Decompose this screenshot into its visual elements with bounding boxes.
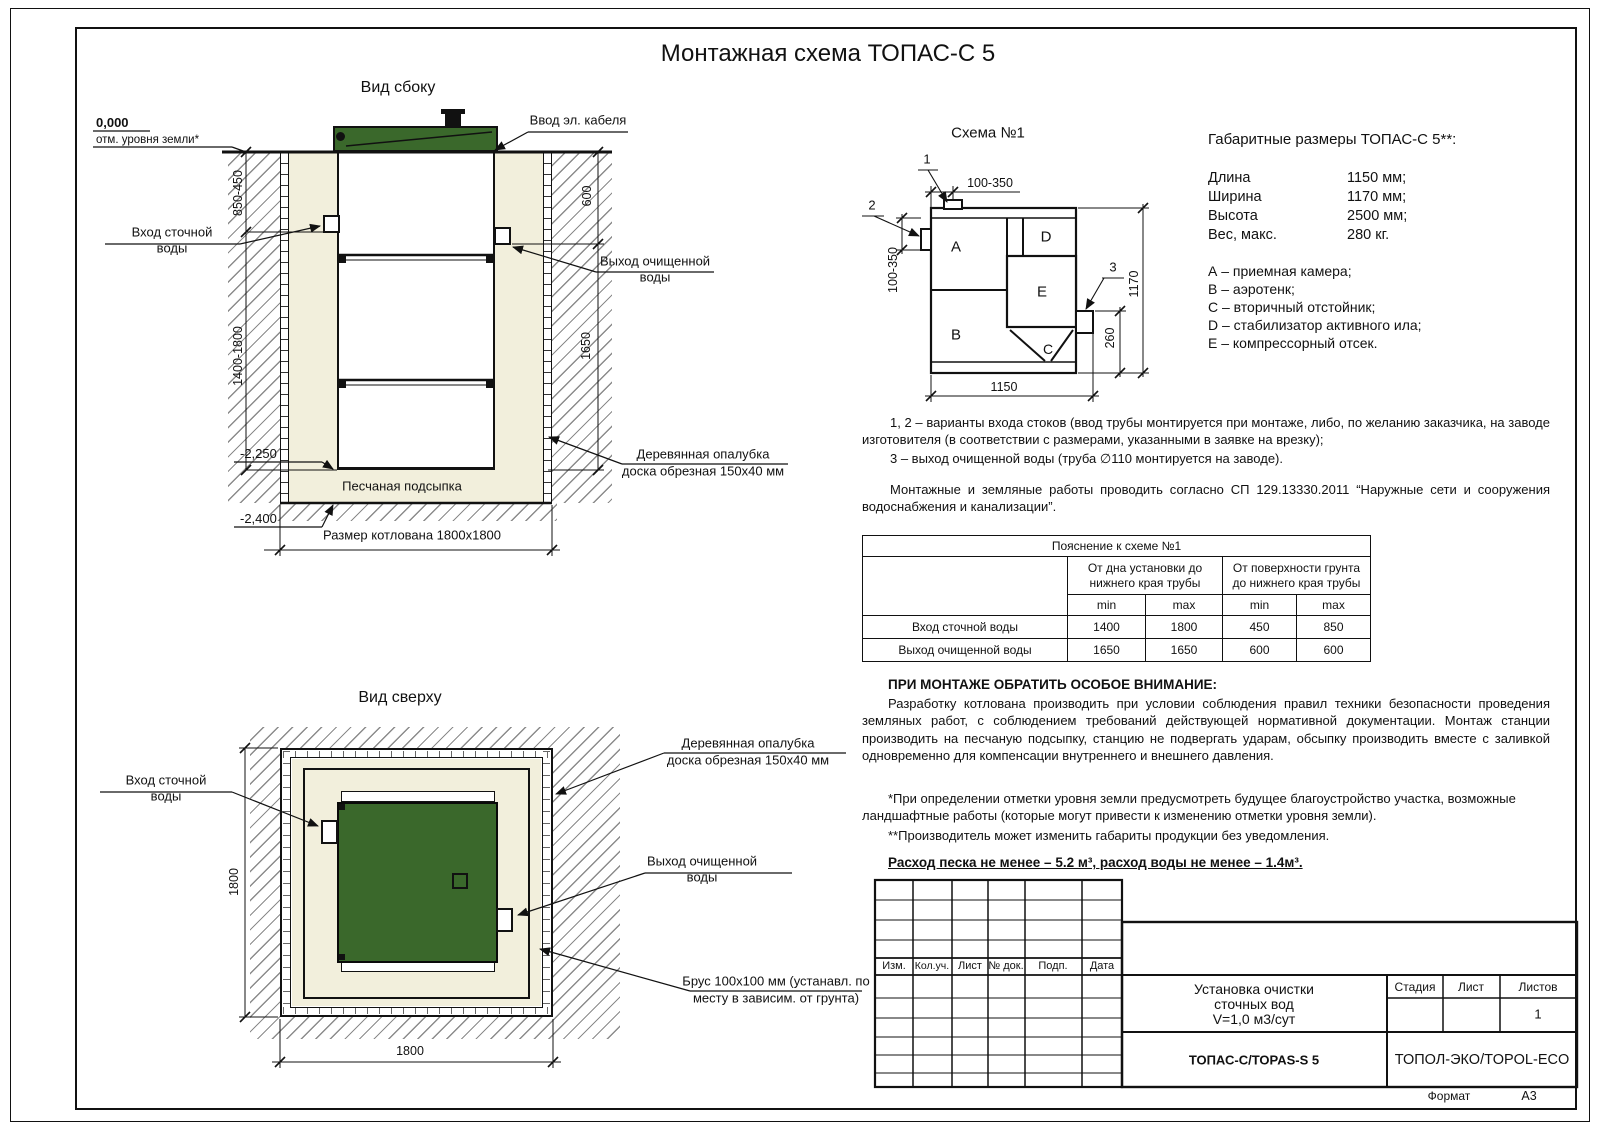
stamp-col-izm: Изм. [882,960,906,972]
sheets-value: 1 [1534,1007,1541,1022]
schema-caption: Схема №1 [951,124,1025,141]
stamp-col-koluch: Кол.уч. [915,960,949,972]
table-max-header: max [1146,595,1223,616]
schema-callout-3: 3 [1109,261,1116,276]
inlet-pipe-stub-side [323,215,340,233]
row-value: 600 [1297,639,1371,662]
pit-size-label: Размер котлована 1800х1800 [323,529,501,544]
row-value: 450 [1223,616,1297,639]
dim-inlet-range: 1400-1800 [231,326,245,386]
dim-1800-vertical: 1800 [227,868,241,896]
outlet-label-top: Выход очищенной [647,855,757,870]
row-label: Выход очищенной воды [863,639,1068,662]
outlet-pipe-stub-top [496,908,513,932]
schema-dim-left: 100-350 [886,247,900,293]
inlet-label-side: Вход сточной [132,226,213,241]
outlet-label-side: Выход очищенной [600,255,710,270]
doc-title-line3: V=1,0 м3/сут [1213,1011,1296,1027]
sand-label: Песчаная подсыпка [342,480,462,495]
row-value: 1650 [1146,639,1223,662]
row-value: 1400 [1068,616,1146,639]
attention-title: ПРИ МОНТАЖЕ ОБРАТИТЬ ОСОБОЕ ВНИМАНИЕ: [888,677,1217,693]
sheet-label: Лист [1458,980,1484,994]
legend-item: А – приемная камера; [1208,263,1352,279]
formwork-label-side: Деревянная опалубка [637,448,770,463]
explanation-table: Пояснение к схеме №1 От дна установки до… [862,535,1371,662]
mark-2250: -2,250 [240,447,277,462]
drawing-sheet: Монтажная схема ТОПАС-С 5 Вид сбоку 0,00… [0,0,1600,1131]
spec-key: Ширина [1208,189,1262,206]
stamp-col-data: Дата [1090,960,1114,972]
spec-value: 1170 мм; [1347,189,1406,206]
doc-title-line1: Установка очистки [1194,981,1314,997]
sheets-label: Листов [1519,980,1558,994]
top-view-caption: Вид сверху [358,689,441,707]
row-value: 850 [1297,616,1371,639]
compartment-d: D [1041,228,1052,245]
top-view-lines [100,743,862,1068]
schema-callout-1: 1 [923,153,930,168]
company-name: ТОПОЛ-ЭКО/TOPOL-ECO [1395,1052,1570,1068]
schema-dim-height: 1170 [1127,271,1141,298]
stamp-col-list: Лист [958,960,982,972]
table-min-header: min [1223,595,1297,616]
spec-value: 1150 мм; [1347,170,1406,187]
spec-key: Вес, макс. [1208,227,1277,244]
inlet-label-side: воды [157,242,188,257]
doc-title-line2: сточных вод [1214,996,1294,1012]
table-row: Выход очищенной воды 1650 1650 600 600 [863,639,1371,662]
mark-2400: -2,400 [240,512,277,527]
footnote-1: *При определении отметки уровня земли пр… [862,790,1554,825]
compartment-a: A [951,238,961,255]
dim-1800-horizontal: 1800 [396,1044,424,1058]
format-value: А3 [1521,1089,1536,1103]
schema-dim-top: 100-350 [967,176,1013,190]
zero-note: отм. уровня земли* [96,134,199,147]
dim-outlet-range: 1650 [579,332,593,360]
spec-key: Высота [1208,208,1258,225]
consumption-note: Расход песка не менее – 5.2 м³, расход в… [888,855,1303,871]
schema-lines [862,170,1149,402]
zero-mark: 0,000 [96,116,129,131]
table-group2-header: От поверхности грунта до нижнего края тр… [1223,557,1371,595]
schema-dim-outlet: 260 [1103,328,1117,349]
row-value: 600 [1223,639,1297,662]
footnote-2: **Производитель может изменить габариты … [862,827,1554,844]
dim-inlet-depth: 850-450 [231,170,245,216]
compartment-b: B [951,326,961,343]
table-title: Пояснение к схеме №1 [863,536,1371,557]
table-row: Вход сточной воды 1400 1800 450 850 [863,616,1371,639]
note-sp: Монтажные и земляные работы проводить со… [862,481,1550,516]
schema-dim-width: 1150 [991,380,1018,394]
sheet-title: Монтажная схема ТОПАС-С 5 [661,40,996,68]
beam-label: месту в зависим. от грунта) [693,992,859,1007]
row-value: 1650 [1068,639,1146,662]
spec-value: 280 кг. [1347,227,1389,244]
stage-label: Стадия [1395,980,1436,994]
formwork-label-side: доска обрезная 150х40 мм [622,465,784,480]
stamp-col-ndok: № док. [988,960,1023,972]
stamp-col-podp: Подп. [1038,960,1067,972]
table-group1-header: От дна установки до нижнего края трубы [1068,557,1223,595]
table-corner-cell [863,557,1068,616]
legend-item: С – вторичный отстойник; [1208,299,1375,315]
note-variants: 1, 2 – варианты входа стоков (ввод трубы… [862,414,1550,449]
spec-value: 2500 мм; [1347,208,1407,225]
row-value: 1800 [1146,616,1223,639]
attention-body: Разработку котлована производить при усл… [862,695,1550,765]
legend-item: Е – компрессорный отсек. [1208,335,1378,351]
cable-label: Ввод эл. кабеля [530,114,627,129]
formwork-label-top: Деревянная опалубка [682,737,815,752]
note-outlet: 3 – выход очищенной воды (труба ∅110 мон… [862,450,1550,467]
schema-callout-2: 2 [868,199,875,214]
beam-label: Брус 100х100 мм (устанавл. по [682,975,869,990]
outlet-label-top: воды [687,871,718,886]
inlet-label-top: Вход сточной [126,774,207,789]
inlet-label-top: воды [151,790,182,805]
formwork-label-top: доска обрезная 150х40 мм [667,754,829,769]
spec-key: Длина [1208,170,1250,187]
outlet-label-side: воды [640,271,671,286]
specs-title: Габаритные размеры ТОПАС-С 5**: [1208,131,1456,148]
compartment-e: E [1037,283,1047,300]
compartment-c: C [1043,341,1053,357]
row-label: Вход сточной воды [863,616,1068,639]
side-view-caption: Вид сбоку [361,79,436,97]
format-label: Формат [1428,1089,1471,1103]
model-name: ТОПАС-С/TOPAS-S 5 [1189,1053,1319,1068]
legend-item: В – аэротенк; [1208,281,1295,297]
outlet-pipe-stub-side [494,227,511,245]
inlet-pipe-stub-top [321,820,338,844]
legend-item: D – стабилизатор активного ила; [1208,317,1422,333]
table-max-header: max [1297,595,1371,616]
table-min-header: min [1068,595,1146,616]
dim-outlet-depth: 600 [580,186,594,207]
